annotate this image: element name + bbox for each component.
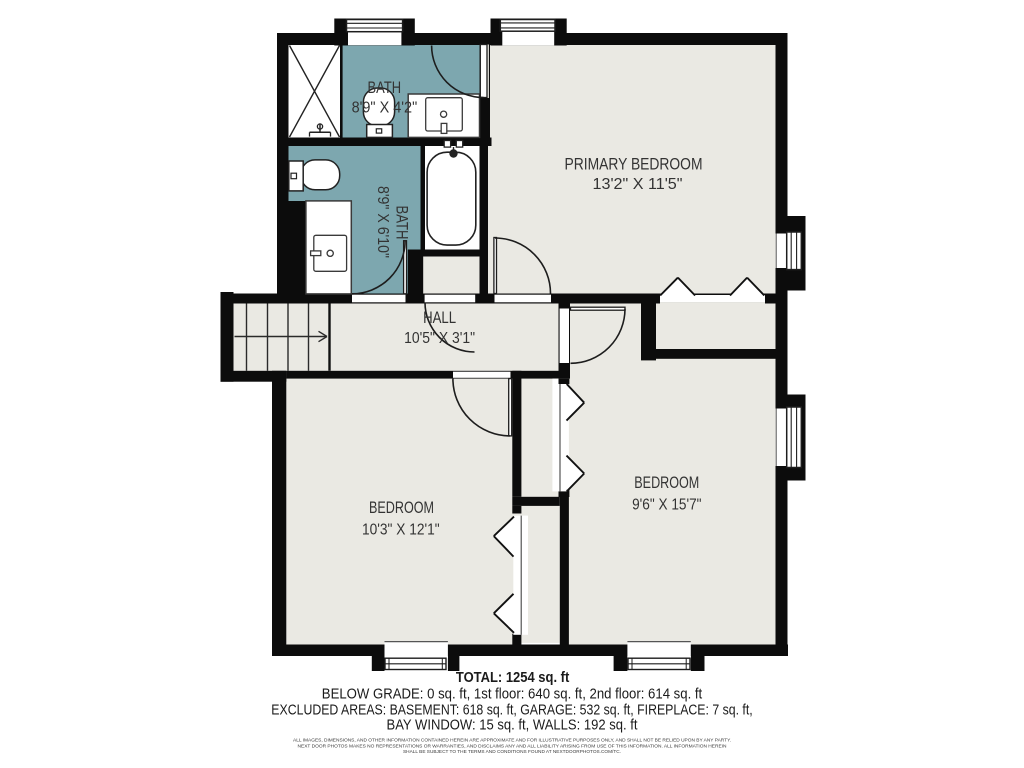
svg-text:BATH: BATH	[393, 206, 411, 240]
svg-text:BEDROOM: BEDROOM	[634, 474, 699, 492]
svg-text:8'9" X 6'10": 8'9" X 6'10"	[374, 186, 391, 258]
svg-text:10'3" X 12'1": 10'3" X 12'1"	[362, 522, 440, 539]
svg-text:BATH: BATH	[368, 79, 402, 97]
svg-text:NEXT DOOR PHOTOS MAKES NO REPR: NEXT DOOR PHOTOS MAKES NO REPRESENTATION…	[298, 743, 727, 749]
svg-text:TOTAL: 1254 sq. ft: TOTAL: 1254 sq. ft	[456, 670, 570, 686]
svg-text:ALL IMAGES, DIMENSIONS, AND OT: ALL IMAGES, DIMENSIONS, AND OTHER INFORM…	[293, 738, 731, 744]
svg-text:EXCLUDED AREAS: BASEMENT: 618: EXCLUDED AREAS: BASEMENT: 618 sq. ft, GA…	[271, 703, 752, 719]
svg-text:BAY WINDOW: 15 sq. ft, WALLS:: BAY WINDOW: 15 sq. ft, WALLS: 192 sq. ft	[387, 718, 638, 734]
svg-text:10'5" X 3'1": 10'5" X 3'1"	[404, 330, 475, 347]
svg-text:BELOW GRADE: 0 sq. ft, 1st flo: BELOW GRADE: 0 sq. ft, 1st floor: 640 sq…	[322, 687, 702, 703]
svg-text:BEDROOM: BEDROOM	[369, 499, 434, 517]
svg-text:9'6" X 15'7": 9'6" X 15'7"	[632, 497, 701, 514]
svg-text:SHALL BE SUBJECT TO THE TERMS: SHALL BE SUBJECT TO THE TERMS AND CONDIT…	[403, 749, 621, 755]
svg-text:13'2" X 11'5": 13'2" X 11'5"	[593, 176, 683, 193]
svg-text:8'9" X 4'2": 8'9" X 4'2"	[352, 100, 418, 117]
svg-text:HALL: HALL	[423, 309, 456, 327]
svg-text:PRIMARY BEDROOM: PRIMARY BEDROOM	[565, 156, 703, 174]
